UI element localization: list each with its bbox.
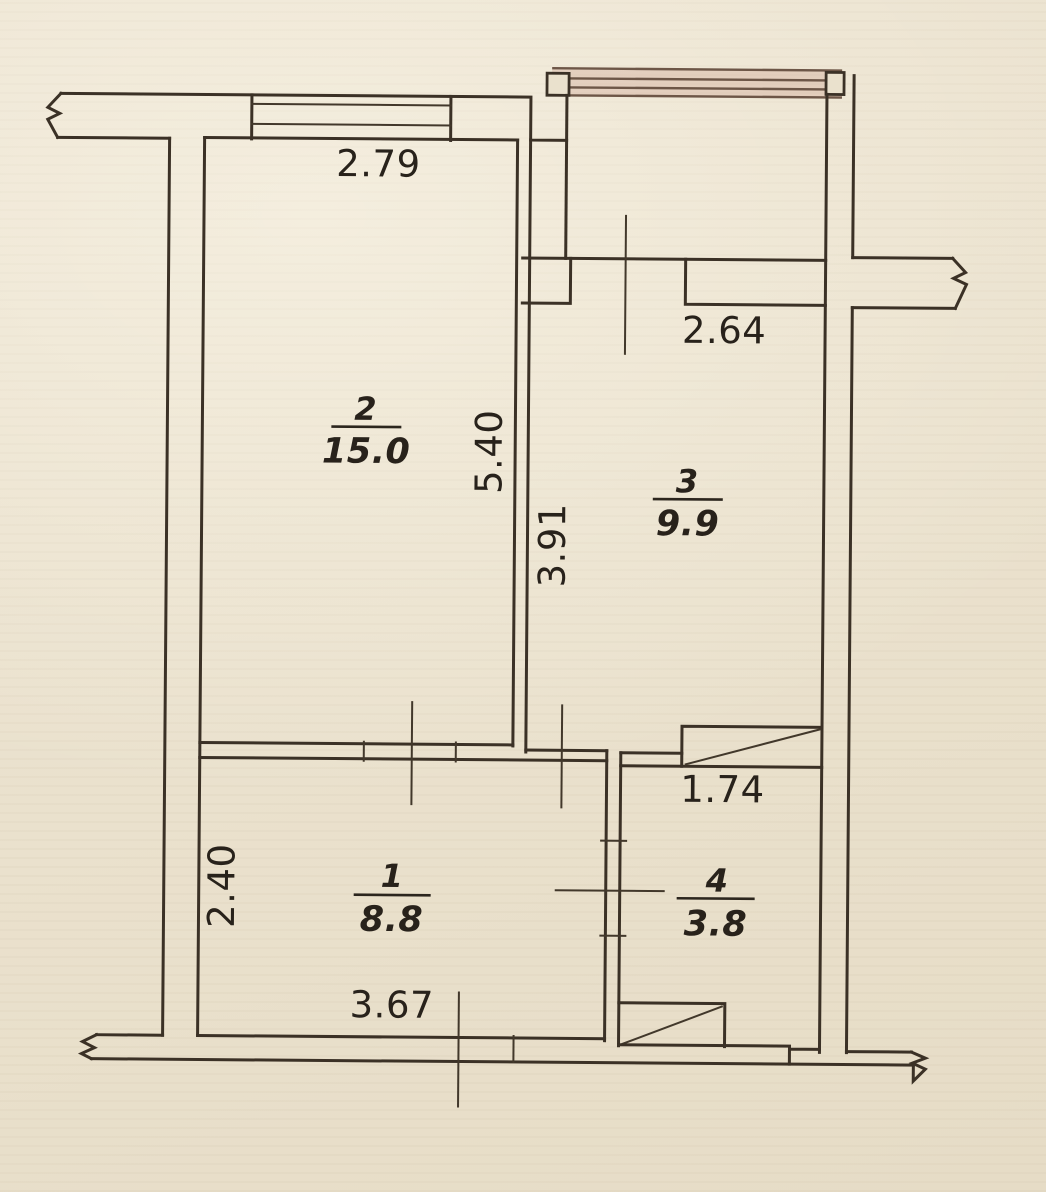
entry-door-mark [458,993,459,1107]
bottom-wall [81,990,926,1111]
room3-underline [653,499,723,500]
balcony-pillar-left [547,73,569,95]
room1-underline [354,895,431,896]
dim-room1-depth: 2.40 [200,843,244,928]
room2-label: 2 15.0 [322,389,411,472]
dim-room3-depth: 3.91 [531,503,575,588]
floor-plan: 2.79 2.64 5.40 3.91 1.74 2.40 3.67 2 15.… [40,64,968,1110]
balcony-glazing-tint [552,68,842,97]
room4-area: 3.8 [684,904,748,944]
dim-room3-width: 2.64 [682,309,767,353]
break-right [952,258,966,308]
dim-room2-width: 2.79 [336,142,421,186]
room1-area: 8.8 [360,900,424,940]
vent-duct-room4 [619,1003,725,1047]
vent-duct-room3 [682,726,822,767]
right-wall-stub [852,258,966,309]
balcony-door-mark [625,216,626,354]
break-top-left [48,93,61,137]
room2-number: 2 [354,390,377,428]
top-wall [48,93,567,141]
scanned-paper-sheet: 2.79 2.64 5.40 3.91 1.74 2.40 3.67 2 15.… [0,0,1046,1192]
break-bottom-left [81,1035,96,1059]
dim-room2-depth: 5.40 [467,409,511,494]
room4-number: 4 [705,861,729,899]
window-room2 [252,95,451,141]
room3-number: 3 [676,462,699,500]
room2-underline [331,427,401,428]
partition-room2-room3 [513,140,531,752]
floor-plan-svg: 2.79 2.64 5.40 3.91 1.74 2.40 3.67 2 15.… [0,0,1046,1192]
balcony-pillar-right [826,72,844,94]
door-mark-room1-room3 [561,705,562,807]
room3-label: 3 9.9 [652,462,723,545]
door-mark-room1-room2 [411,702,412,804]
dim-room1-width: 3.67 [349,983,434,1027]
room4-underline [677,898,755,899]
room1-label: 1 8.8 [353,857,431,941]
room4-door-mark [556,890,664,891]
balcony-side-wall [566,95,567,258]
room1-number: 1 [381,857,404,895]
room2-area: 15.0 [322,431,411,472]
dim-room4-width: 1.74 [680,768,765,812]
right-wall [819,75,854,1052]
room3-area: 9.9 [656,504,720,544]
room3-top-wall [522,258,825,305]
left-wall [163,137,205,1035]
room4-label: 4 3.8 [676,861,755,945]
break-bottom-right [911,1052,925,1081]
balcony-floor-line [523,258,826,260]
